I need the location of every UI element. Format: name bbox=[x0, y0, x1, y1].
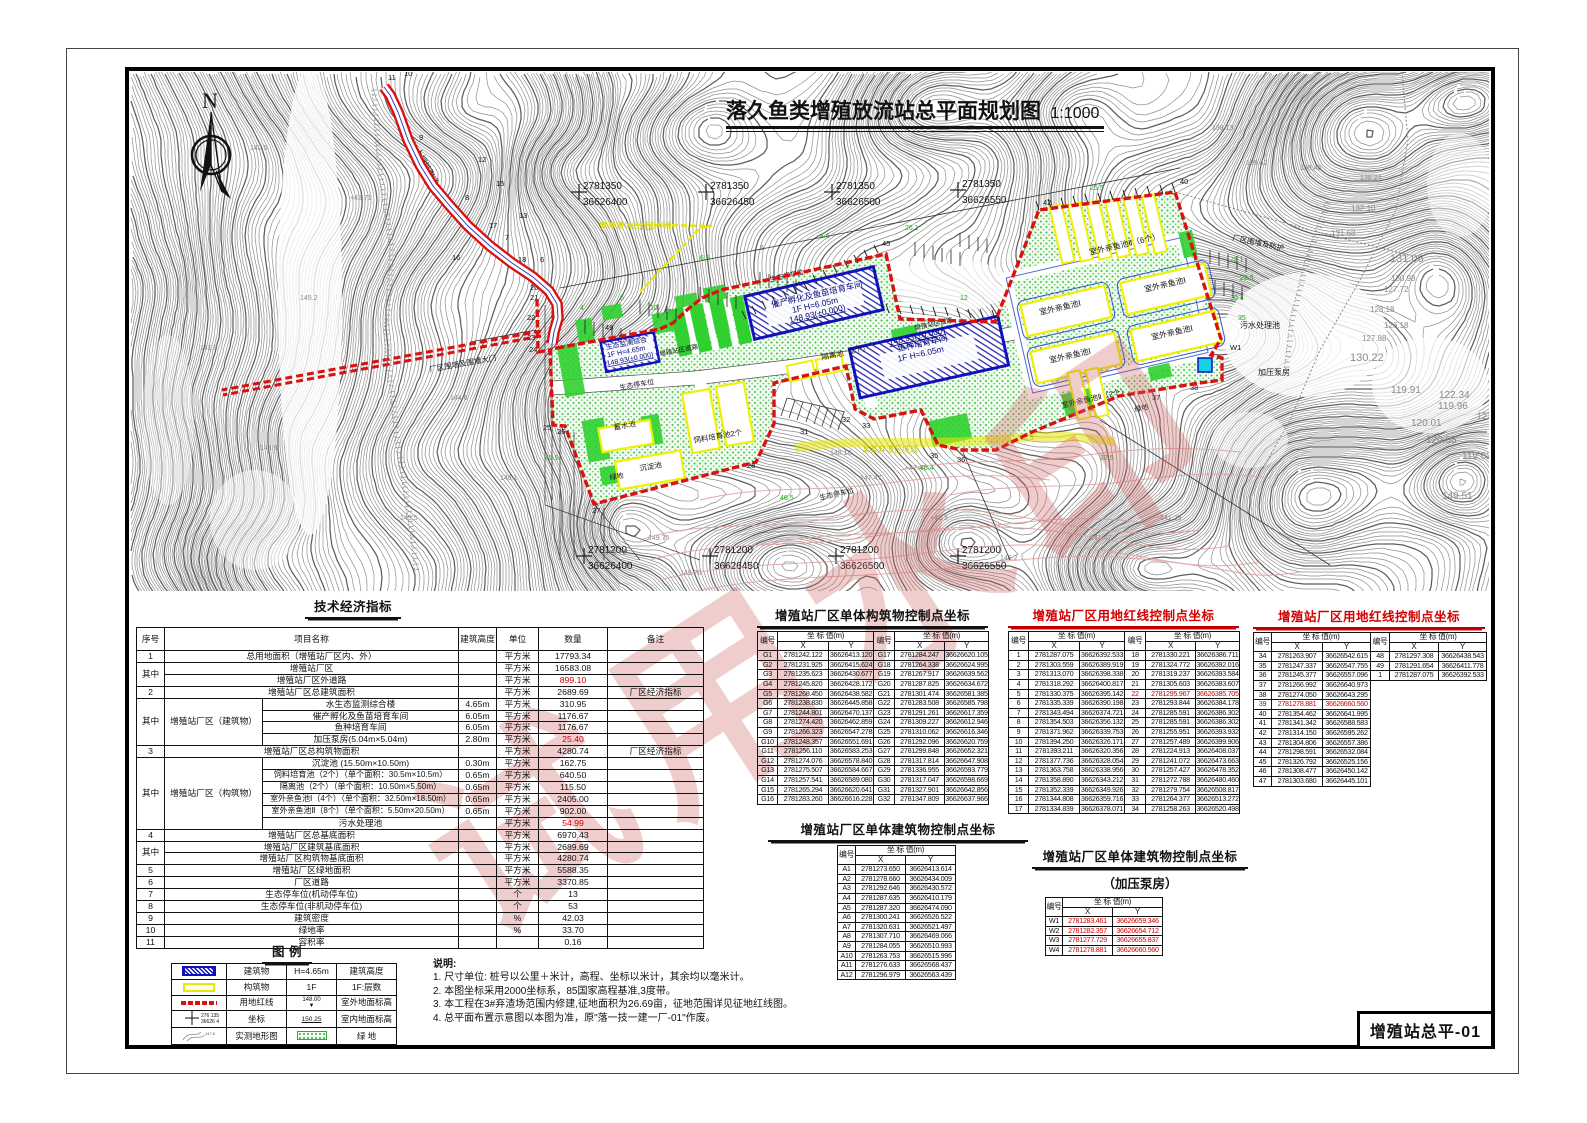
svg-text:36626550: 36626550 bbox=[962, 561, 1007, 572]
svg-text:147.47: 147.47 bbox=[860, 475, 882, 482]
svg-text:40: 40 bbox=[1180, 177, 1188, 186]
svg-text:122.34: 122.34 bbox=[1439, 390, 1470, 401]
svg-text:37: 37 bbox=[1152, 393, 1160, 402]
svg-text:2781350: 2781350 bbox=[583, 181, 622, 192]
svg-text:36626400: 36626400 bbox=[588, 561, 633, 572]
svg-text:某某弃渣区域线: 某某弃渣区域线 bbox=[862, 444, 918, 454]
svg-text:148.18: 148.18 bbox=[830, 450, 852, 457]
svg-text:145.5: 145.5 bbox=[400, 515, 418, 522]
svg-text:32.5: 32.5 bbox=[1100, 455, 1114, 462]
svg-text:149.51: 149.51 bbox=[1442, 491, 1473, 502]
svg-text:130.98: 130.98 bbox=[1391, 274, 1416, 283]
svg-text:141.23: 141.23 bbox=[1160, 515, 1182, 522]
svg-text:36626550: 36626550 bbox=[962, 195, 1007, 206]
svg-text:36626400: 36626400 bbox=[583, 197, 628, 208]
svg-text:7: 7 bbox=[505, 233, 509, 242]
svg-text:145.2: 145.2 bbox=[300, 295, 318, 302]
svg-text:144.6: 144.6 bbox=[450, 395, 468, 402]
svg-text:33: 33 bbox=[862, 421, 870, 430]
svg-text:24: 24 bbox=[529, 345, 537, 354]
svg-text:130.22: 130.22 bbox=[1350, 352, 1384, 364]
svg-text:36626450: 36626450 bbox=[710, 197, 755, 208]
svg-text:132.10: 132.10 bbox=[1351, 204, 1376, 213]
svg-text:+48.3: +48.3 bbox=[930, 515, 948, 522]
svg-text:36626500: 36626500 bbox=[840, 561, 885, 572]
svg-text:8: 8 bbox=[465, 193, 469, 202]
svg-text:139.42: 139.42 bbox=[1246, 160, 1268, 167]
svg-text:120.01: 120.01 bbox=[1411, 418, 1442, 429]
svg-text:126.18: 126.18 bbox=[1384, 321, 1409, 330]
svg-text:46.5: 46.5 bbox=[780, 495, 794, 502]
svg-text:31: 31 bbox=[800, 427, 808, 436]
svg-text:4: 4 bbox=[580, 305, 584, 312]
svg-text:45: 45 bbox=[882, 239, 890, 248]
svg-text:146.1: 146.1 bbox=[500, 475, 518, 482]
svg-text:26.1: 26.1 bbox=[905, 225, 919, 232]
svg-text:138.13: 138.13 bbox=[1212, 125, 1234, 132]
svg-text:141.9: 141.9 bbox=[200, 345, 218, 352]
svg-text:17: 17 bbox=[489, 221, 497, 230]
svg-text:128.18: 128.18 bbox=[1370, 305, 1395, 314]
svg-text:6: 6 bbox=[620, 295, 624, 302]
svg-text:某弃渣场区域边界线: 某弃渣场区域边界线 bbox=[600, 220, 672, 230]
svg-text:13: 13 bbox=[519, 211, 527, 220]
svg-text:32: 32 bbox=[842, 415, 850, 424]
svg-text:15: 15 bbox=[496, 179, 504, 188]
svg-text:36626500: 36626500 bbox=[836, 197, 881, 208]
svg-text:11: 11 bbox=[388, 73, 396, 82]
svg-text:10: 10 bbox=[404, 69, 412, 78]
svg-text:绿地: 绿地 bbox=[1133, 402, 1149, 414]
svg-text:+43.71: +43.71 bbox=[350, 195, 372, 202]
svg-text:139.46: 139.46 bbox=[1300, 165, 1322, 172]
svg-text:122.05: 122.05 bbox=[1477, 411, 1505, 421]
svg-text:2781350: 2781350 bbox=[962, 179, 1001, 190]
svg-text:2781200: 2781200 bbox=[840, 545, 879, 556]
svg-text:12: 12 bbox=[960, 295, 968, 302]
svg-text:36626 400: 36626 400 bbox=[201, 1019, 219, 1025]
svg-text:12: 12 bbox=[478, 155, 486, 164]
svg-text:147.5: 147.5 bbox=[205, 1031, 216, 1036]
svg-text:149.75: 149.75 bbox=[648, 535, 670, 542]
svg-text:142.5: 142.5 bbox=[250, 145, 268, 152]
svg-text:138.24: 138.24 bbox=[1360, 175, 1382, 182]
svg-text:28.5: 28.5 bbox=[1240, 275, 1254, 282]
svg-text:25: 25 bbox=[543, 423, 551, 432]
svg-text:W1: W1 bbox=[1230, 343, 1241, 352]
svg-text:35: 35 bbox=[930, 451, 938, 460]
svg-text:2781350: 2781350 bbox=[710, 181, 749, 192]
svg-text:119.91: 119.91 bbox=[1391, 385, 1421, 396]
svg-text:143.8: 143.8 bbox=[260, 445, 278, 452]
svg-text:25.5: 25.5 bbox=[1090, 185, 1104, 192]
svg-text:6: 6 bbox=[540, 255, 544, 264]
svg-text:污水处理池: 污水处理池 bbox=[1240, 320, 1280, 330]
svg-text:119.62: 119.62 bbox=[1462, 451, 1492, 462]
svg-text:149.73: 149.73 bbox=[605, 550, 627, 557]
svg-text:16: 16 bbox=[452, 253, 460, 262]
svg-text:127.88: 127.88 bbox=[1362, 334, 1387, 343]
svg-text:2781350: 2781350 bbox=[836, 181, 875, 192]
svg-text:127.72: 127.72 bbox=[1384, 285, 1409, 294]
svg-text:加压泵房: 加压泵房 bbox=[1258, 367, 1290, 377]
svg-text:120.05: 120.05 bbox=[1426, 435, 1457, 446]
svg-text:22: 22 bbox=[527, 313, 535, 322]
svg-text:9: 9 bbox=[419, 133, 423, 142]
svg-text:N: N bbox=[202, 88, 218, 113]
svg-text:119.96: 119.96 bbox=[1438, 401, 1468, 412]
svg-text:10: 10 bbox=[650, 305, 658, 312]
